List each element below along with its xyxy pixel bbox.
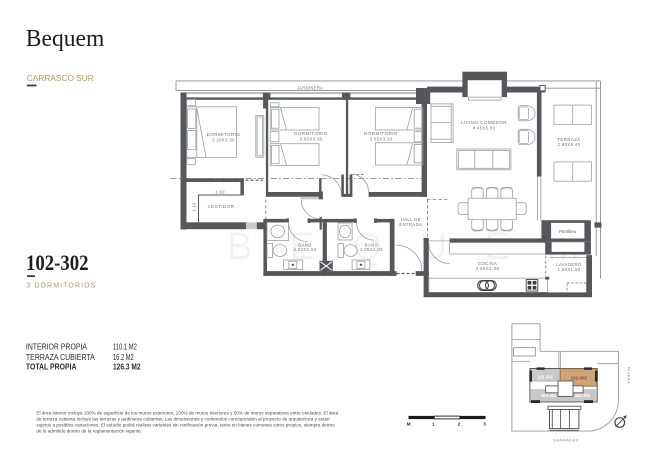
svg-text:101-301: 101-301 xyxy=(538,374,554,379)
svg-text:Bequem: Bequem xyxy=(26,25,105,52)
svg-text:CARRASCO SUR: CARRASCO SUR xyxy=(27,73,94,83)
svg-text:DORMITORIO: DORMITORIO xyxy=(294,131,328,136)
svg-text:104-304: 104-304 xyxy=(541,393,557,398)
svg-text:RIVERA: RIVERA xyxy=(627,367,632,384)
svg-text:ENTRADA: ENTRADA xyxy=(399,222,422,227)
svg-text:126.3 M2: 126.3 M2 xyxy=(113,362,141,372)
svg-text:sujetos a posibles variaciones: sujetos a posibles variaciones. El estud… xyxy=(36,422,335,427)
svg-text:Parrillero: Parrillero xyxy=(559,229,577,234)
svg-text:de terraza cubierta incluye la: de terraza cubierta incluye las terrazas… xyxy=(36,416,330,421)
svg-text:3.20X3.30: 3.20X3.30 xyxy=(212,138,235,143)
svg-text:TOTAL PROPIA: TOTAL PROPIA xyxy=(26,362,77,372)
svg-text:VESTIDOR: VESTIDOR xyxy=(208,204,235,209)
svg-text:4.45X5.90: 4.45X5.90 xyxy=(473,125,496,130)
svg-text:M: M xyxy=(407,421,411,426)
svg-text:1.50X1.50: 1.50X1.50 xyxy=(558,267,581,272)
svg-text:103-303: 103-303 xyxy=(575,393,591,398)
svg-text:3.05X3.10: 3.05X3.10 xyxy=(370,137,393,142)
svg-text:2: 2 xyxy=(458,421,461,426)
svg-text:102-302: 102-302 xyxy=(571,376,588,381)
svg-text:DORMITORIO: DORMITORIO xyxy=(364,131,398,136)
svg-text:110.1 M2: 110.1 M2 xyxy=(113,342,137,352)
svg-text:4.65X2.00: 4.65X2.00 xyxy=(476,266,500,271)
svg-text:102-302: 102-302 xyxy=(26,250,89,275)
svg-text:3.05X3.30: 3.05X3.30 xyxy=(300,137,323,142)
svg-text:El área interior incluye 100%: El área interior incluye 100% de superfi… xyxy=(36,410,338,415)
svg-text:16.2 M2: 16.2 M2 xyxy=(113,352,134,362)
svg-text:de lo admitido dentro de la re: de lo admitido dentro de la reglamentaci… xyxy=(36,428,142,433)
svg-text:2.52X2.03: 2.52X2.03 xyxy=(294,247,317,252)
svg-text:INTERIOR PROPIA: INTERIOR PROPIA xyxy=(26,342,87,352)
svg-text:2.80X5.40: 2.80X5.40 xyxy=(558,142,581,147)
svg-text:1: 1 xyxy=(432,421,435,426)
svg-text:DORMITORIO: DORMITORIO xyxy=(207,132,241,137)
svg-text:BARRADAS: BARRADAS xyxy=(553,438,578,443)
svg-text:1.10: 1.10 xyxy=(192,202,197,212)
svg-text:TERRAZA CUBIERTA: TERRAZA CUBIERTA xyxy=(26,352,95,362)
svg-text:2.08X2.03: 2.08X2.03 xyxy=(360,247,383,252)
svg-text:3 DORMITORIOS: 3 DORMITORIOS xyxy=(26,282,96,289)
svg-text:JARDINERA: JARDINERA xyxy=(297,85,324,90)
svg-text:1.60: 1.60 xyxy=(215,190,225,195)
svg-text:3: 3 xyxy=(483,421,486,426)
